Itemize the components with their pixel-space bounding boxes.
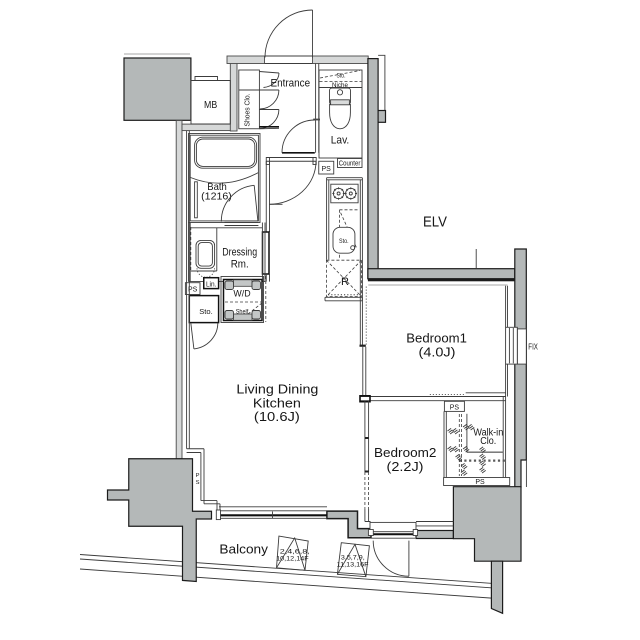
svg-text:Lin.: Lin.	[206, 279, 217, 288]
svg-text:MB: MB	[204, 100, 217, 111]
svg-text:Bedroom2: Bedroom2	[374, 445, 436, 460]
svg-text:W/D: W/D	[233, 289, 250, 300]
svg-text:FIX: FIX	[528, 342, 538, 351]
svg-text:Entrance: Entrance	[271, 78, 311, 90]
svg-text:PS: PS	[475, 479, 485, 486]
svg-text:(4.0J): (4.0J)	[419, 344, 456, 359]
svg-text:ELV: ELV	[423, 214, 447, 230]
svg-text:Sto.: Sto.	[339, 238, 349, 245]
svg-text:10,12,14F: 10,12,14F	[276, 555, 309, 562]
svg-text:Counter: Counter	[339, 161, 361, 168]
svg-text:Dressing: Dressing	[222, 247, 257, 259]
svg-text:Balcony: Balcony	[219, 542, 268, 557]
svg-text:PS: PS	[322, 166, 332, 173]
svg-text:Shoes Clo.: Shoes Clo.	[243, 94, 252, 127]
svg-text:Sto.: Sto.	[337, 73, 346, 80]
svg-text:Lav.: Lav.	[331, 135, 350, 147]
svg-text:R: R	[341, 276, 349, 288]
svg-text:(10.6J): (10.6J)	[254, 409, 300, 424]
svg-text:Sto.: Sto.	[199, 307, 213, 316]
svg-text:Living Dining: Living Dining	[236, 381, 318, 396]
svg-text:Shelf: Shelf	[236, 309, 249, 316]
svg-text:3,5,7,9,: 3,5,7,9,	[341, 554, 365, 561]
svg-text:Rm.: Rm.	[231, 258, 249, 270]
svg-text:11,13,16F: 11,13,16F	[337, 561, 369, 568]
svg-text:Bedroom1: Bedroom1	[406, 331, 467, 346]
svg-text:S: S	[196, 480, 200, 486]
svg-text:(2.2J): (2.2J)	[387, 459, 424, 474]
svg-text:Clo.: Clo.	[480, 436, 496, 447]
svg-text:PS: PS	[450, 404, 460, 411]
svg-text:P: P	[196, 473, 200, 479]
